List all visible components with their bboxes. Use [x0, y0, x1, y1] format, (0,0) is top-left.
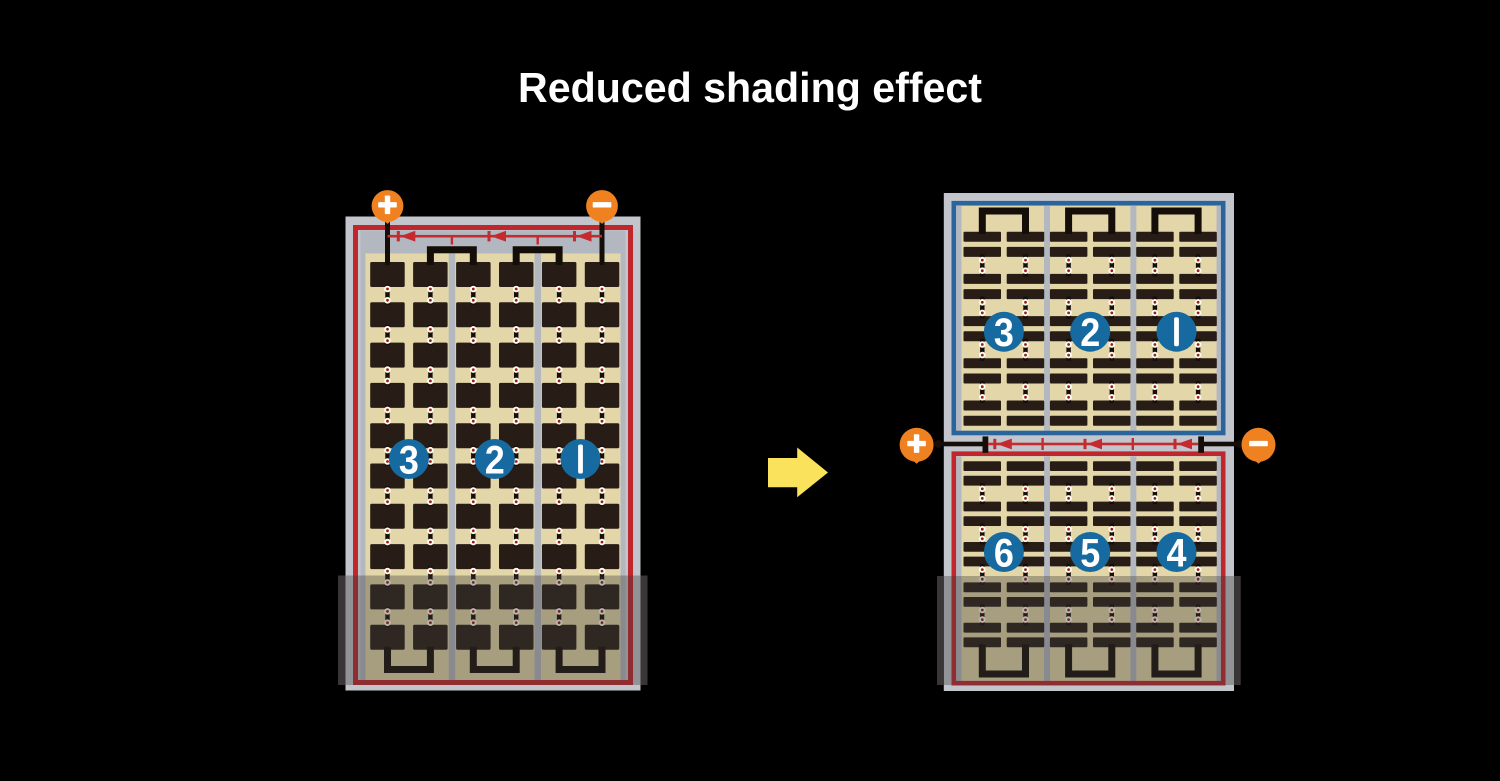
svg-text:4: 4	[1167, 532, 1188, 576]
svg-text:3: 3	[994, 311, 1014, 355]
svg-text:3: 3	[399, 439, 419, 483]
svg-text:2: 2	[1080, 311, 1100, 355]
svg-text:6: 6	[994, 532, 1014, 576]
svg-text:2: 2	[485, 439, 505, 483]
svg-text:5: 5	[1080, 532, 1100, 576]
svg-text:Reduced shading effect: Reduced shading effect	[518, 64, 982, 111]
